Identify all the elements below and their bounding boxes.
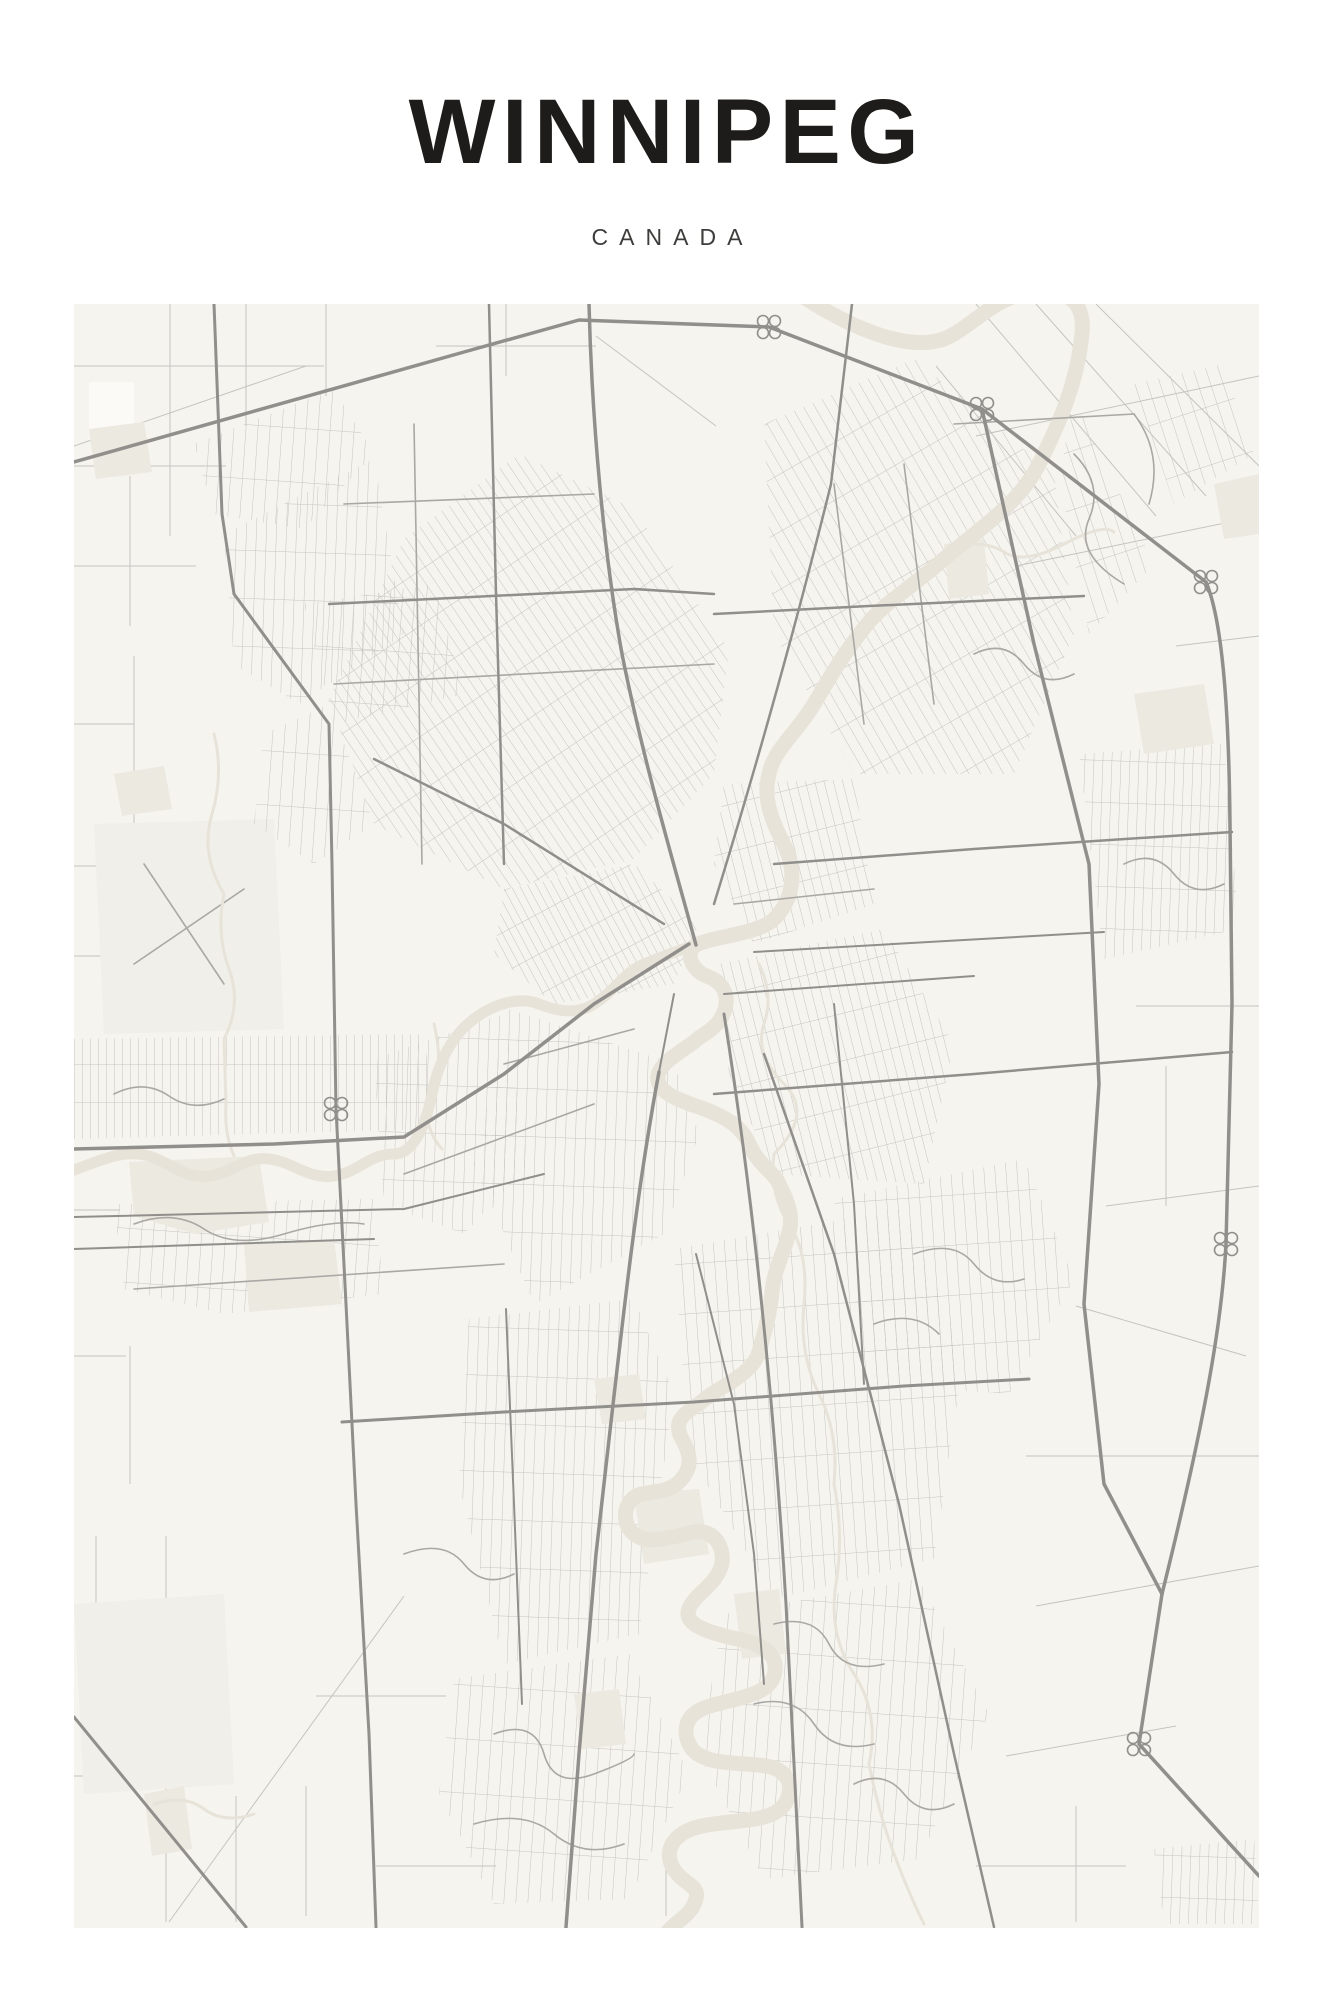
crescent-drive-park	[594, 1374, 646, 1424]
city-map-canvas	[74, 304, 1259, 1928]
grid-patch-transcona	[1079, 744, 1239, 959]
transcona-golf-course	[1134, 684, 1214, 754]
poster-page: WINNIPEG CANADA	[0, 0, 1334, 2000]
map-frame	[74, 304, 1259, 1928]
poster-subtitle: CANADA	[0, 224, 1334, 251]
farm-field-southwest	[74, 1594, 234, 1794]
la-barriere-park	[144, 1786, 192, 1856]
grid-patch-fort-garry	[459, 1299, 674, 1664]
grid-patch-southeast-corner	[1154, 1839, 1259, 1924]
poster-title: WINNIPEG	[0, 86, 1334, 178]
westview-park	[114, 766, 172, 816]
